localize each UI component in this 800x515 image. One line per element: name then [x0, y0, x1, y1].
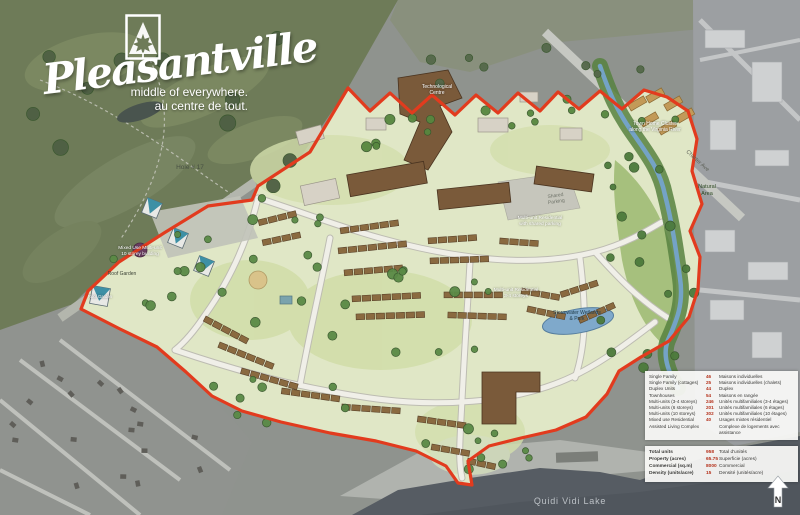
legend-panel: Single Family46Maisons individuellesSing… [645, 371, 798, 482]
legend-total-row: Property (acres)65.75Superficie (acres) [649, 456, 794, 463]
playground [249, 271, 267, 289]
label-townhome-cluster: Town Home Cluster along the Virginia Riv… [629, 121, 681, 134]
legend-cell-en: Total units [649, 449, 706, 456]
logo-taglines: middle of everywhere. au centre de tout. [92, 86, 248, 114]
label-roof-garden-tower: Roof Garden [88, 294, 112, 299]
legend-cell-fr: Superficie (acres) [719, 456, 794, 463]
label-roof-garden: Roof Garden [108, 271, 137, 277]
label-technology-centre: Technological Centre [422, 84, 452, 97]
north-arrow-icon: N [766, 474, 790, 510]
legend-cell-en: Property (acres) [649, 456, 706, 463]
legend-total-row: Commercial (sq.m)8000Commercial [649, 463, 794, 470]
sports-court [280, 296, 292, 304]
legend-cell-count: 15 [706, 470, 719, 477]
legend-cell-count: 8000 [706, 463, 719, 470]
legend-cell-fr: Total d'unités [719, 449, 794, 456]
legend-cell-en: Commercial (sq.m) [649, 463, 706, 470]
legend-cell-count: 958 [706, 449, 719, 456]
legend-row: Assisted Living ComplexComplexe de logem… [649, 424, 794, 436]
north-letter: N [775, 495, 782, 505]
legend-cell-fr: Commercial [719, 463, 794, 470]
legend-unit-table: Single Family46Maisons individuellesSing… [645, 371, 798, 440]
label-stormwater: Stormwater Wetlands & Park [553, 310, 601, 323]
label-quidi-vidi-lake: Quidi Vidi Lake [534, 496, 606, 507]
legend-cell-en: Density (units/acre) [649, 470, 706, 477]
legend-cell-count: 65.75 [706, 456, 719, 463]
legend-cell-en: Assisted Living Complex [649, 424, 706, 436]
tagline-fr: au centre de tout. [92, 100, 248, 114]
label-hole-17: Hole # 17 [176, 164, 204, 172]
strip-plaza-building [556, 451, 598, 462]
label-multi-unit-2: Multi-unit Residential 3-4 storeys [494, 288, 539, 300]
label-mixed-use: Mixed Use Multi-unit 10 storey building [118, 246, 161, 258]
legend-cell-count [706, 424, 719, 436]
site-plan-poster: Pleasantville middle of everywhere. au c… [0, 0, 800, 515]
label-shared-parking: Shared Parking [547, 192, 566, 207]
legend-cell-fr: Complexe de logements avec assistance [719, 424, 794, 436]
tagline-en: middle of everywhere. [92, 86, 248, 100]
legend-total-row: Total units958Total d'unités [649, 449, 794, 456]
label-multi-unit: Multi-unit Residential with shared parki… [518, 216, 563, 228]
label-natural-area: Natural Area [698, 184, 716, 198]
